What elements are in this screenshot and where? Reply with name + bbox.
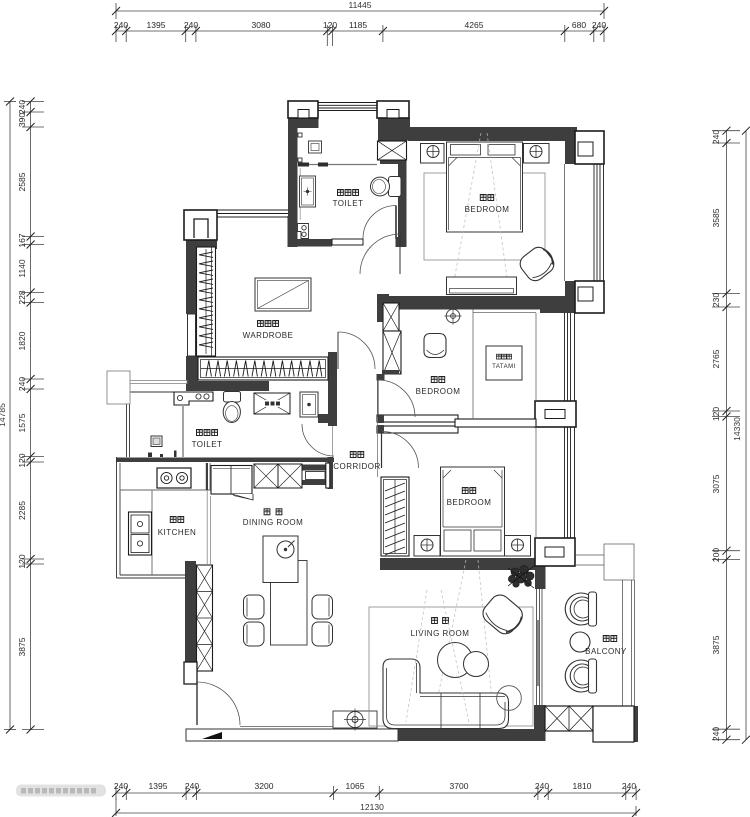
svg-text:1185: 1185 — [349, 20, 368, 30]
svg-text:14785: 14785 — [0, 403, 7, 427]
svg-text:CORRIDOR: CORRIDOR — [333, 462, 381, 471]
svg-text:2285: 2285 — [17, 501, 27, 520]
svg-text:167: 167 — [17, 233, 27, 247]
svg-text:BEDROOM: BEDROOM — [465, 205, 510, 214]
svg-text:240: 240 — [184, 20, 198, 30]
svg-text:200: 200 — [711, 548, 721, 562]
svg-text:120: 120 — [711, 407, 721, 421]
svg-text:3080: 3080 — [252, 20, 271, 30]
svg-text:3875: 3875 — [711, 635, 721, 654]
svg-text:KITCHEN: KITCHEN — [158, 528, 197, 537]
svg-text:DINING ROOM: DINING ROOM — [243, 518, 304, 527]
svg-text:240: 240 — [114, 20, 128, 30]
svg-text:BALCONY: BALCONY — [585, 647, 627, 656]
svg-text:240: 240 — [114, 781, 128, 791]
svg-text:2585: 2585 — [17, 172, 27, 191]
svg-text:BEDROOM: BEDROOM — [447, 498, 492, 507]
svg-text:3075: 3075 — [711, 474, 721, 493]
svg-text:228: 228 — [17, 290, 27, 304]
svg-text:1065: 1065 — [346, 781, 365, 791]
svg-text:3700: 3700 — [450, 781, 469, 791]
svg-text:240: 240 — [17, 100, 27, 114]
svg-text:240: 240 — [622, 781, 636, 791]
svg-text:TOILET: TOILET — [333, 199, 364, 208]
svg-text:BEDROOM: BEDROOM — [416, 387, 461, 396]
svg-text:230: 230 — [711, 293, 721, 307]
svg-text:12130: 12130 — [360, 802, 384, 812]
svg-text:14330: 14330 — [732, 417, 742, 441]
svg-text:11445: 11445 — [348, 0, 371, 10]
svg-text:240: 240 — [711, 727, 721, 741]
svg-text:WARDROBE: WARDROBE — [243, 331, 294, 340]
svg-text:120: 120 — [17, 453, 27, 467]
svg-text:3875: 3875 — [17, 637, 27, 656]
svg-text:4265: 4265 — [465, 20, 484, 30]
svg-text:1140: 1140 — [17, 259, 27, 278]
svg-text:120: 120 — [17, 554, 27, 568]
svg-text:240: 240 — [711, 130, 721, 144]
svg-text:3585: 3585 — [711, 208, 721, 227]
svg-text:1395: 1395 — [147, 20, 166, 30]
svg-text:TATAMI: TATAMI — [492, 364, 516, 370]
svg-text:120: 120 — [323, 20, 337, 30]
svg-text:1395: 1395 — [149, 781, 168, 791]
svg-text:240: 240 — [592, 20, 606, 30]
svg-text:240: 240 — [185, 781, 199, 791]
svg-text:3200: 3200 — [255, 781, 274, 791]
svg-text:390: 390 — [17, 113, 27, 127]
svg-text:1810: 1810 — [573, 781, 592, 791]
svg-text:680: 680 — [572, 20, 586, 30]
svg-text:2765: 2765 — [711, 349, 721, 368]
svg-text:240: 240 — [535, 781, 549, 791]
svg-text:LIVING ROOM: LIVING ROOM — [411, 629, 470, 638]
svg-text:TOILET: TOILET — [192, 440, 223, 449]
svg-text:240: 240 — [17, 377, 27, 391]
svg-text:1575: 1575 — [17, 413, 27, 432]
svg-text:1820: 1820 — [17, 331, 27, 350]
